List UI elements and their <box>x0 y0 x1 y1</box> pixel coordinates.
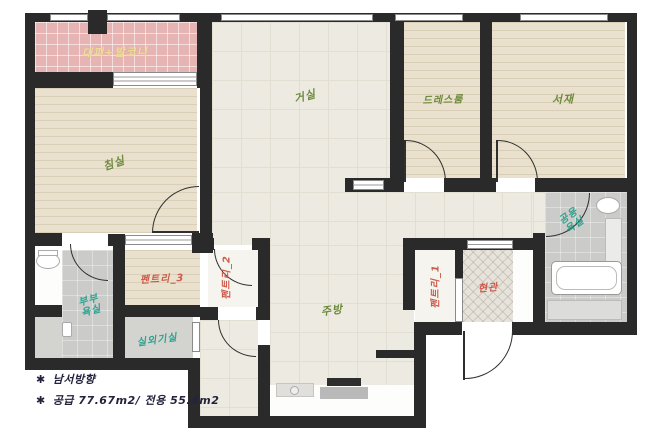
window <box>125 235 192 245</box>
note-area-text: 공급 77.67m2/ 전용 55.4m2 <box>53 394 220 407</box>
wall <box>113 238 125 358</box>
wall <box>414 330 426 428</box>
note-bullet: ✱ <box>36 394 46 407</box>
door-leaf-study <box>496 140 498 182</box>
note-direction: ✱남서방향 <box>36 371 95 387</box>
wall <box>258 345 270 428</box>
wall <box>200 88 212 238</box>
wall <box>200 307 218 320</box>
wall <box>480 22 492 180</box>
wall <box>25 358 200 370</box>
toilet-icon <box>596 197 620 214</box>
bath-door-floor <box>533 192 545 233</box>
wall <box>403 250 415 310</box>
door-leaf-bedroom <box>152 231 199 233</box>
window <box>50 14 88 21</box>
front-door-arc <box>465 331 513 379</box>
wall <box>35 233 62 246</box>
door-leaf-dressroom <box>404 140 406 182</box>
wall <box>200 238 214 250</box>
stove-base <box>320 387 368 399</box>
bathtub-inner <box>556 266 617 290</box>
window <box>395 14 463 21</box>
window <box>353 180 384 190</box>
wall <box>627 13 637 335</box>
wall <box>444 178 496 192</box>
room-label-balcony: 대피+발코니 <box>73 43 157 60</box>
floorplan: 대피+발코니 침실 거실 드레스룸 서재 펜트리_3 펜트리_2 펜트리_1 현… <box>0 0 658 435</box>
room-label-study: 서재 <box>546 90 581 107</box>
wall <box>30 305 62 317</box>
kitchen-sink-basin <box>290 386 299 395</box>
wall <box>88 10 107 34</box>
closet-band <box>467 240 513 249</box>
wall <box>535 178 627 192</box>
shoe-closet-floor <box>513 250 533 322</box>
wall <box>188 416 426 428</box>
room-label-pantry1: 펜트리_1 <box>427 258 442 316</box>
room-label-entrance: 현관 <box>470 278 505 296</box>
wall <box>376 350 414 358</box>
wall <box>197 13 212 88</box>
bathtub <box>551 261 622 295</box>
window <box>107 14 180 21</box>
wall <box>113 305 200 317</box>
wall <box>455 250 463 278</box>
room-label-pantry2: 펜트리_2 <box>218 249 233 307</box>
bath-shelf <box>547 300 622 320</box>
balcony-window <box>113 72 197 86</box>
room-label-dressroom: 드레스룸 <box>414 90 472 107</box>
sliding-door <box>455 278 463 322</box>
living-floor <box>212 22 390 192</box>
shower-room-floor <box>32 317 62 358</box>
note-area: ✱공급 77.67m2/ 전용 55.4m2 <box>36 392 219 408</box>
wall <box>512 322 560 335</box>
wall <box>256 307 270 320</box>
wall <box>35 72 113 88</box>
note-bullet: ✱ <box>36 373 46 386</box>
front-door-leaf <box>463 331 465 380</box>
sink-icon <box>62 322 72 337</box>
window <box>192 322 200 352</box>
window <box>520 14 608 21</box>
wall <box>390 22 404 180</box>
vanity <box>605 218 622 266</box>
note-direction-text: 남서방향 <box>53 373 95 386</box>
window <box>221 14 373 21</box>
toilet-tank <box>38 250 58 256</box>
stove-top <box>327 378 361 386</box>
